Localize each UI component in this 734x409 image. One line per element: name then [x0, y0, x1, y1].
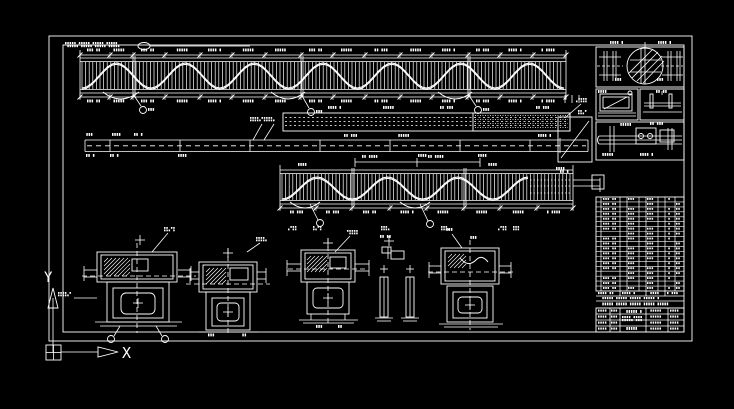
ucs-icon[interactable]: Y X	[44, 270, 131, 362]
pier-section-d	[428, 228, 514, 330]
cad-drawing-canvas[interactable]: Y X	[0, 0, 734, 409]
detail-box-right	[640, 89, 684, 120]
detail-box-left	[596, 89, 638, 120]
ucs-y-label: Y	[44, 270, 53, 286]
detail-box-wide	[596, 122, 684, 160]
section-cut-labels	[288, 226, 519, 230]
deck-plan-strip-upper	[283, 106, 570, 137]
rebar-schedule-table	[596, 197, 684, 308]
pier-section-c	[287, 230, 369, 328]
girder-elevation-top	[78, 49, 587, 118]
axis-marker	[138, 43, 250, 50]
pier-section-posts	[375, 235, 419, 321]
cad-drawing: Y X	[0, 0, 734, 409]
girder-elevation-middle	[278, 155, 605, 228]
detail-callout-box	[558, 110, 592, 162]
deck-plan-strip-lower	[85, 117, 588, 157]
pier-section-a	[58, 227, 196, 343]
pier-section-b	[186, 237, 270, 336]
ucs-x-label: X	[122, 344, 131, 362]
detail-box-top	[596, 41, 684, 87]
title-block	[596, 308, 684, 332]
